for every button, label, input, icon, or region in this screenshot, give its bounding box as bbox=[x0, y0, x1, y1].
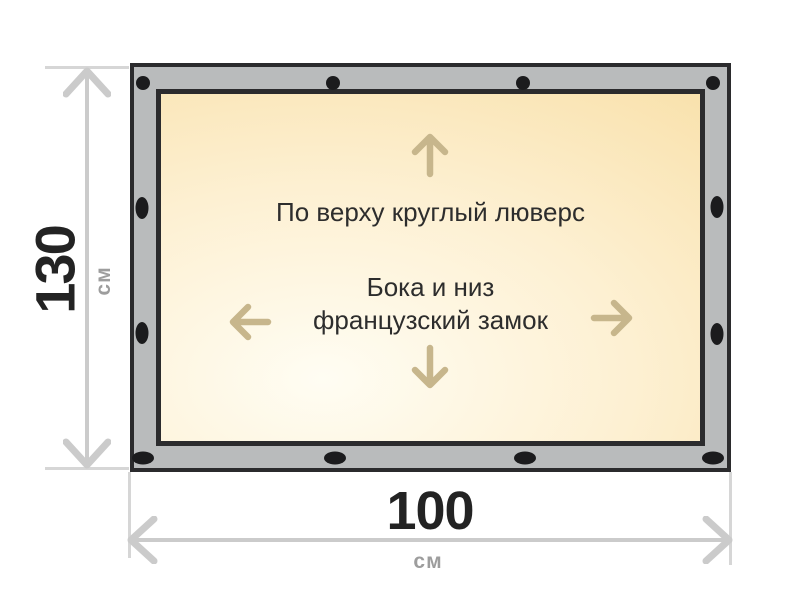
height-value: 130 bbox=[23, 226, 88, 313]
grommet-right-icon bbox=[711, 323, 724, 345]
width-unit: см bbox=[413, 550, 442, 574]
grommet-bottom-icon bbox=[324, 452, 346, 465]
arrow-down-icon bbox=[406, 344, 454, 392]
banner-frame: По верху круглый люверс Бока и низ франц… bbox=[130, 63, 731, 472]
diagram-canvas: По верху круглый люверс Бока и низ франц… bbox=[0, 0, 800, 600]
grommet-left-icon bbox=[136, 322, 149, 344]
arrow-up-icon bbox=[406, 130, 454, 178]
grommet-bottom-icon bbox=[514, 452, 536, 465]
arrow-right-icon bbox=[588, 294, 636, 342]
grommet-top-icon bbox=[516, 76, 530, 90]
width-value: 100 bbox=[386, 480, 473, 542]
height-unit: см bbox=[92, 266, 116, 295]
grommet-top-icon bbox=[326, 76, 340, 90]
grommet-bottom-left-icon bbox=[132, 452, 154, 465]
grommet-top-right-icon bbox=[706, 76, 720, 90]
banner-canvas: По верху круглый люверс Бока и низ франц… bbox=[156, 89, 705, 446]
top-edge-note: По верху круглый люверс bbox=[161, 197, 700, 228]
arrow-left-icon bbox=[226, 298, 274, 346]
grommet-left-icon bbox=[136, 197, 149, 219]
grommet-right-icon bbox=[711, 196, 724, 218]
grommet-bottom-right-icon bbox=[702, 452, 724, 465]
grommet-top-left-icon bbox=[136, 76, 150, 90]
